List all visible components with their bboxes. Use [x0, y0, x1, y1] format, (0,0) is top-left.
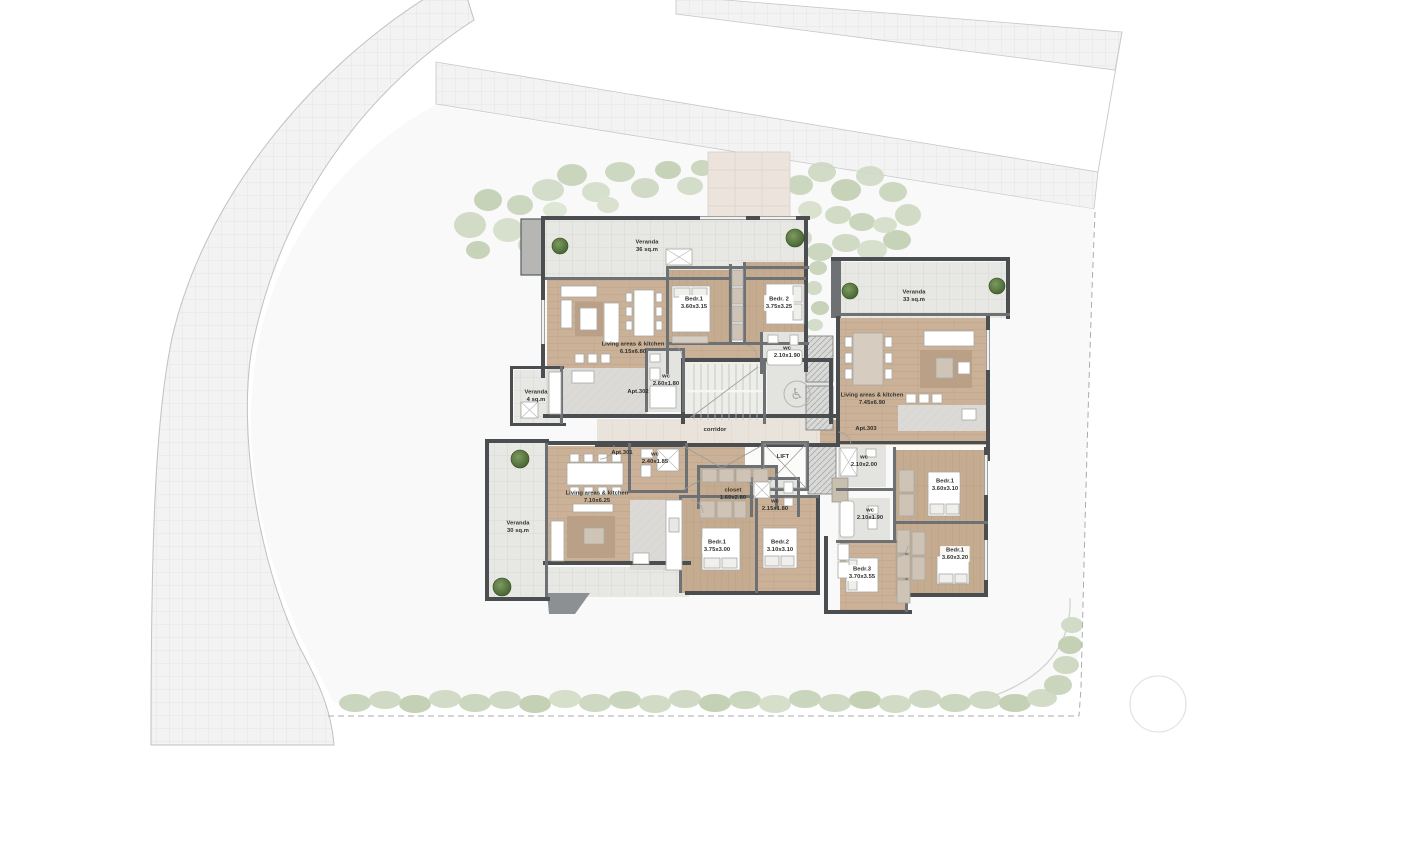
floor-plan-canvas: ♿ — [0, 0, 1405, 866]
tree-icon — [552, 238, 568, 254]
survey-circle — [1130, 676, 1186, 732]
svg-text:♿: ♿ — [790, 386, 803, 403]
corridor-floor — [597, 419, 838, 444]
tree-icon — [493, 578, 511, 596]
veranda-33-floor — [835, 262, 1008, 318]
tree-icon — [989, 278, 1005, 294]
building: ♿ — [485, 216, 1010, 614]
site-plan-drawing: ♿ — [0, 0, 1405, 866]
tree-icon — [511, 450, 529, 468]
tree-icon — [786, 229, 804, 247]
entry-path — [708, 152, 790, 220]
tree-icon — [842, 283, 858, 299]
